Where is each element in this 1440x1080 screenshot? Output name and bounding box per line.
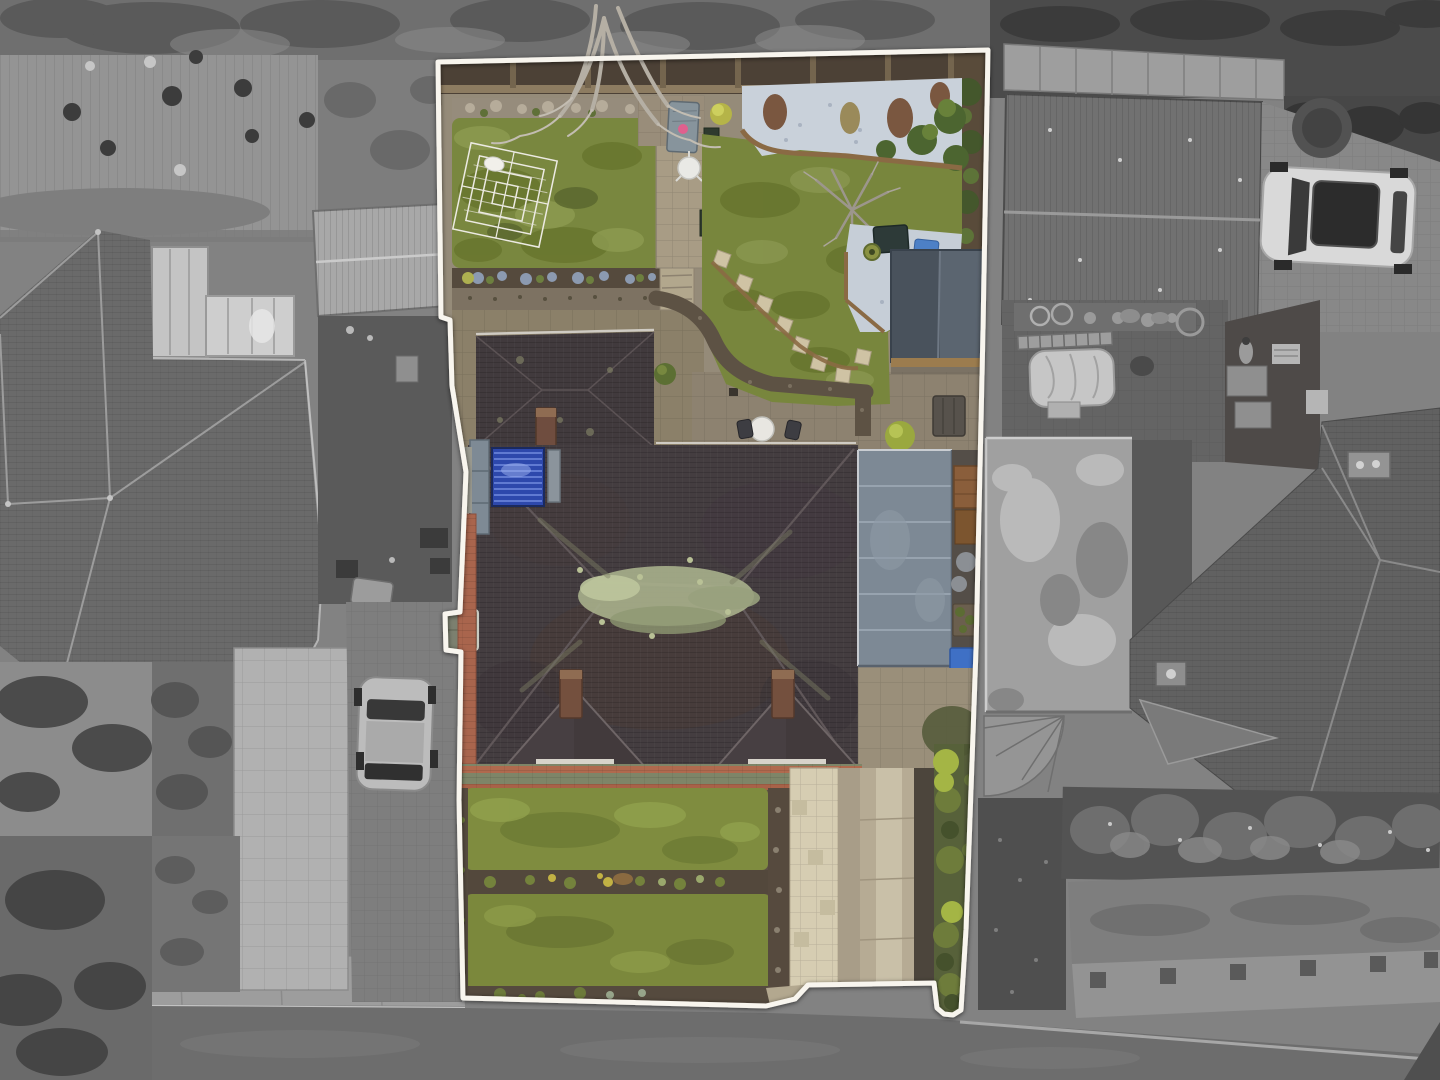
alley-planter-greens-item: [965, 615, 975, 625]
ferns-light-item: [1178, 837, 1222, 863]
right-lawn-mottle-item: [1360, 917, 1440, 943]
bottom-border-pale-item: [606, 991, 614, 999]
wall-left-joints-item: [468, 296, 472, 300]
gravel-speckles-item: [798, 123, 802, 127]
wall-speckles-item: [698, 316, 702, 320]
left-bed-blobs-item: [151, 682, 199, 718]
ladder-rungs-item: [1100, 332, 1101, 345]
wall-posts-item: [1230, 964, 1246, 980]
border-succulents-item: [547, 272, 557, 282]
rockery-stones-item: [596, 100, 608, 112]
shed-roof-left: [891, 250, 940, 362]
garage-roof-stains-item: [915, 578, 945, 622]
alley-dots-item: [367, 335, 373, 341]
left-block-driveway-texture: [346, 602, 462, 1002]
left-bed-blobs-item: [188, 726, 232, 758]
grey-sacks-item: [951, 576, 967, 592]
lawn-mottle-light-item: [592, 228, 644, 252]
ferns-light-item: [1250, 836, 1290, 860]
grey-units-item: [1235, 402, 1271, 428]
driveway-shadow-strip: [838, 768, 860, 1000]
white-car-wheels-item: [1274, 260, 1292, 270]
stone-wall-blobs-item: [155, 856, 195, 884]
deck-light-pots-item: [144, 56, 156, 68]
mid-border-plants-item: [715, 877, 725, 887]
moss-dots-item: [649, 633, 655, 639]
right-chimney-2-pot: [1166, 669, 1176, 679]
drive-dark-edge: [914, 768, 936, 1008]
wall-speckles-item: [788, 384, 792, 388]
right-chimney-1: [1348, 452, 1390, 478]
white-car-wheels-item: [1394, 264, 1412, 274]
outbuilding-speckles-item: [1188, 138, 1192, 142]
left-patio-bushes-item: [0, 676, 88, 728]
deck-plant-pots-item: [162, 86, 182, 106]
grey-sacks-item: [956, 552, 976, 572]
border-greens-item: [486, 276, 494, 284]
alley-clutter-item: [336, 560, 358, 578]
stone-wall-blobs-item: [192, 890, 228, 914]
moss-dots-item: [599, 619, 605, 625]
left-bed-blobs-item: [156, 774, 208, 810]
grey-car-rear-window: [364, 763, 423, 781]
driveway-tiles-dark-item: [808, 850, 823, 865]
bed-dry-grass-item: [840, 102, 860, 134]
skylight: [548, 450, 560, 502]
hedge-blobs-item: [938, 973, 962, 997]
moss-dots-item: [725, 609, 731, 615]
lawn-mottle-dark-item: [582, 142, 642, 170]
hedge-bright-bushes-item: [933, 749, 959, 775]
outbuilding-speckles-item: [1218, 248, 1222, 252]
fern-speckles-item: [1248, 826, 1252, 830]
below-steps-speckles-item: [1018, 878, 1022, 882]
below-steps-garden: [978, 798, 1066, 1010]
wall-speckles-item: [828, 387, 832, 391]
rockery-stones-item: [490, 100, 502, 112]
lawn-mottle-dark-item: [454, 238, 502, 262]
right-lawn-mottle-item: [1230, 895, 1370, 925]
ferns-light-item: [1110, 832, 1150, 858]
bench-under-table: [1048, 402, 1080, 418]
hedge-blobs-item: [933, 922, 959, 948]
bottom-left-shrub-blobs-item: [16, 1028, 108, 1076]
chimney-rear-cap: [536, 408, 556, 417]
fern-speckles-item: [1388, 830, 1392, 834]
gravel-speckles-item: [854, 140, 858, 144]
stepping-stones-item: [855, 349, 872, 366]
driveway-tiles-dark-item: [794, 932, 809, 947]
pond-gravel-speckles-item: [880, 300, 884, 304]
moss-blob-2: [688, 586, 760, 610]
right-border-stones-item: [774, 927, 780, 933]
grey-car-wheels-item: [430, 750, 438, 768]
garden-wall-left: [452, 288, 662, 310]
right-chimney-1-pots-item: [1356, 461, 1364, 469]
shed-timber-base: [891, 358, 986, 367]
gravel-speckles-item: [828, 103, 832, 107]
outbuilding-speckles-item: [1078, 258, 1082, 262]
bottom-border-shrubs-item: [574, 987, 586, 999]
gravel-speckles-item: [858, 128, 862, 132]
aerial-photo-canvas: [0, 0, 1440, 1080]
mid-border-plants-item: [564, 877, 576, 889]
flower-blobs-item: [1151, 312, 1169, 324]
road-patches-item: [960, 1047, 1140, 1069]
garden-step-treads-item: [662, 287, 692, 288]
outbuilding-speckles-item: [1048, 128, 1052, 132]
rockery-stones-item: [465, 103, 475, 113]
moss-dots-item: [577, 567, 583, 573]
lawn-mottle-deep-item: [554, 187, 598, 209]
right-conifers-light-item: [963, 168, 979, 184]
rear-wing-moss-item: [557, 417, 563, 423]
patio-table: [750, 417, 774, 441]
front-lawn-2-light-item: [610, 951, 670, 973]
below-steps-speckles-item: [998, 838, 1002, 842]
hedge-dark-gaps-item: [941, 821, 959, 839]
front-lawn-1-light-item: [720, 822, 760, 842]
top-tree-highlights-item: [395, 27, 505, 53]
left-roof-ridge-caps-item: [95, 229, 101, 235]
top-tree-highlights-item: [755, 25, 865, 55]
pale-stone-path-texture: [234, 648, 348, 990]
gravel-speckles-item: [784, 138, 788, 142]
dark-patch: [1130, 356, 1154, 376]
flat-roof-stains-dark-item: [1076, 522, 1128, 598]
wall-speckles-item: [860, 408, 864, 412]
mid-border-pale-item: [658, 878, 666, 886]
right-border-stones-item: [775, 807, 781, 813]
below-steps-speckles-item: [1034, 958, 1038, 962]
mid-border-brown-clump: [613, 873, 633, 885]
wall-posts-item: [1160, 968, 1176, 984]
rlawn-mottle-dark-item: [770, 291, 830, 319]
right-lawn-mottle-item: [1090, 904, 1210, 936]
left-patio-bushes-item: [72, 724, 152, 772]
outbuilding-speckles-item: [1158, 288, 1162, 292]
bottom-left-shrub-blobs-item: [74, 962, 146, 1010]
path-side-bush-hi: [657, 365, 667, 375]
white-car-sunroof: [1311, 181, 1380, 248]
wheelie-bin: [396, 356, 418, 382]
left-neighbor-plot: [0, 50, 462, 1080]
mid-border-plants-item: [525, 875, 535, 885]
wall-posts-item: [1424, 952, 1438, 968]
rear-fence-posts-item: [810, 52, 816, 88]
bed-red-grasses-item: [887, 98, 913, 138]
bin-store: [933, 396, 965, 436]
moss-blob-1: [580, 575, 640, 601]
alley-clutter-item: [430, 558, 450, 574]
bed-dry-grass: [840, 102, 860, 134]
border-greens-item: [586, 276, 594, 284]
wall-left-joints-item: [493, 297, 497, 301]
mid-border-yellow-item: [603, 877, 613, 887]
pot-row-item: [1084, 312, 1096, 324]
rear-wing-moss-item: [586, 428, 594, 436]
right-chimney-1-pots-item: [1372, 460, 1380, 468]
ladder-rungs-item: [1052, 335, 1053, 348]
property-interior-color: [436, 44, 992, 1024]
border-greens-item: [636, 274, 644, 282]
deck-plant-pots-item: [299, 112, 315, 128]
front-lawn-1-light-item: [470, 798, 530, 822]
deck-light-pots-item: [85, 61, 95, 71]
garage-roof-stains-item: [870, 510, 910, 570]
border-succulents-item: [497, 271, 507, 281]
hedge-bright-bushes-item: [941, 901, 963, 923]
hedge-dark-gaps-item: [936, 953, 954, 971]
white-garden-table: [678, 157, 700, 179]
front-lawn-1-light-item: [614, 802, 686, 828]
yellow-shrub-hi: [712, 104, 724, 116]
greenhouse-upper: [152, 247, 208, 357]
wall-left-joints-item: [593, 295, 597, 299]
border-yellow-bush: [462, 272, 474, 284]
flat-roof-stains-dark-item: [1040, 574, 1080, 626]
rlawn-mottle-light-item: [736, 240, 788, 264]
ladder-rungs-item: [1064, 334, 1065, 347]
front-lawn-2-mottle-item: [666, 939, 734, 965]
grey-car-wheels-item: [428, 686, 436, 704]
border-succulents-item: [572, 272, 584, 284]
greenhouse-glare: [249, 309, 275, 343]
rear-wing-moss-item: [497, 417, 503, 423]
fern-speckles-item: [1108, 822, 1112, 826]
bottom-left-shrub-blobs-item: [5, 870, 105, 930]
patio-chair-left: [737, 419, 754, 439]
border-greens-item: [536, 275, 544, 283]
wall-left-joints-item: [568, 296, 572, 300]
moss-dots-item: [637, 574, 643, 580]
alley-dots-item: [346, 326, 354, 334]
moss-dots-item: [687, 557, 693, 563]
concrete-center-band: [876, 768, 902, 1006]
patio-chair-right: [784, 420, 801, 441]
outbuilding-speckles-item: [1118, 158, 1122, 162]
left-roof-ridge-caps-item: [107, 495, 113, 501]
flat-roof-stains-light-item: [992, 464, 1032, 492]
below-steps-speckles-item: [994, 928, 998, 932]
wall-posts-item: [1090, 972, 1106, 988]
bed-evergreens-hi-item: [938, 99, 956, 117]
ladder-rungs-item: [1088, 333, 1089, 346]
rockery-stones-item: [571, 103, 581, 113]
rockery-stones-item: [625, 104, 635, 114]
road-patches-item: [180, 1030, 420, 1058]
wall-posts-item: [1300, 960, 1316, 976]
mid-border-plants-item: [674, 878, 686, 890]
border-succulents-item: [648, 273, 656, 281]
hedge-blobs-item: [936, 846, 964, 874]
rear-wing-moss-item: [607, 367, 613, 373]
grey-car-wheels-item: [356, 752, 364, 770]
bottom-border-pale-item: [638, 989, 646, 997]
fern-speckles-item: [1318, 843, 1322, 847]
chimney-front-left-cap: [560, 670, 582, 679]
driveway-tiles-dark-item: [792, 800, 807, 815]
stone-wall-blobs-item: [160, 938, 204, 966]
hedge-bright-bushes-item: [934, 772, 954, 792]
garden-step-treads-item: [662, 275, 692, 276]
top-right-shrub-blobs-item: [1000, 6, 1120, 42]
ladder-rungs-item: [1028, 336, 1029, 349]
wall-left-joints-item: [643, 296, 647, 300]
rockery-plants-item: [480, 109, 488, 117]
alley-clutter-item: [420, 528, 448, 548]
hedge-dark-gaps-item: [944, 994, 960, 1010]
outbuilding-speckles-item: [1238, 178, 1242, 182]
wall-left-joints-item: [518, 295, 522, 299]
ladder-rungs-item: [1076, 333, 1077, 346]
moss-dots-item: [697, 579, 703, 585]
moss-blob-3: [610, 606, 726, 634]
flat-roof-stains-light-item: [1076, 454, 1124, 486]
solar-panel-glare: [501, 463, 531, 477]
driveway-tiles-dark-item: [820, 900, 835, 915]
border-succulents-item: [625, 274, 635, 284]
shed-roof-right: [940, 250, 986, 362]
bed-evergreens-hi-item: [922, 124, 938, 140]
deck-plant-pots-item: [63, 103, 81, 121]
alley-dots-item: [389, 557, 395, 563]
deck-light-pots-item: [174, 164, 186, 176]
drain-cover: [729, 388, 738, 396]
border-succulents-item: [599, 271, 609, 281]
fern-speckles-item: [1178, 838, 1182, 842]
mid-border-plants-item: [635, 876, 645, 886]
mid-border-yellow-item: [548, 874, 556, 882]
wall-posts-item: [1370, 956, 1386, 972]
round-planter-core: [869, 249, 875, 255]
side-yard-blobs-item: [324, 82, 376, 118]
wall-speckles-item: [748, 380, 752, 384]
wall-windows-item: [1306, 390, 1328, 414]
grey-car-wheels-item: [354, 688, 362, 706]
deck-plant-pots-item: [245, 129, 259, 143]
right-border-stones-item: [776, 887, 782, 893]
front-lawn-2-light-item: [484, 905, 536, 927]
person-head: [1242, 337, 1250, 345]
fern-speckles-item: [1426, 848, 1430, 852]
right-border-stones-item: [773, 847, 779, 853]
mid-border-pale-item: [696, 875, 704, 883]
front-lawn-1-mottle-item: [662, 836, 738, 864]
rear-wing-moss-item: [516, 356, 524, 364]
ladder-rungs-item: [1040, 335, 1041, 348]
patio-bush-hi: [889, 424, 903, 438]
deck-plant-pots-item: [234, 79, 252, 97]
deck-plant-pots-item: [189, 50, 203, 64]
lawn-mottle-light-item: [454, 126, 510, 150]
mid-border-plants-item: [484, 876, 496, 888]
deck-plant-pots-item: [100, 140, 116, 156]
grey-units-item: [1227, 366, 1267, 396]
round-shrub-core: [1302, 108, 1342, 148]
flower-blobs-item: [1120, 309, 1140, 323]
alley-planter-greens-item: [955, 607, 965, 617]
alley-planter-greens-item: [959, 625, 967, 633]
rockery-plants-item: [532, 108, 540, 116]
below-steps-speckles-item: [1044, 860, 1048, 864]
white-car-wheels-item: [1270, 162, 1288, 172]
aerial-photo: [0, 0, 1440, 1080]
chimney-front-right-cap: [772, 670, 794, 679]
border-succulents-item: [520, 273, 532, 285]
grey-car-windshield: [367, 699, 426, 721]
wall-windows-item: [1272, 344, 1300, 364]
top-right-shrub-blobs-item: [1130, 0, 1270, 40]
top-tree-highlights-item: [170, 29, 290, 59]
right-border-stones-item: [775, 967, 781, 973]
shed-shadow: [891, 367, 986, 374]
road-patches-item: [560, 1037, 840, 1063]
garden-wall-right-return: [855, 392, 871, 436]
flat-roof-stains-dark-item: [988, 688, 1024, 712]
left-roof-ridge-caps-item: [5, 501, 11, 507]
bed-red-grasses-item: [763, 94, 787, 130]
top-right-shrub-blobs-item: [1280, 10, 1400, 46]
wall-left-joints-item: [543, 297, 547, 301]
below-steps-speckles-item: [1010, 990, 1014, 994]
grey-car-roof: [365, 721, 424, 763]
wall-left-joints-item: [618, 297, 622, 301]
pink-dot: [678, 124, 688, 134]
white-car-wheels-item: [1390, 168, 1408, 178]
ferns-light-item: [1320, 840, 1360, 864]
rockery-stones-item: [517, 104, 527, 114]
mid-border-yellow-item: [597, 873, 603, 879]
side-yard-blobs-item: [370, 130, 430, 170]
rlawn-mottle-dark-item: [720, 182, 800, 218]
